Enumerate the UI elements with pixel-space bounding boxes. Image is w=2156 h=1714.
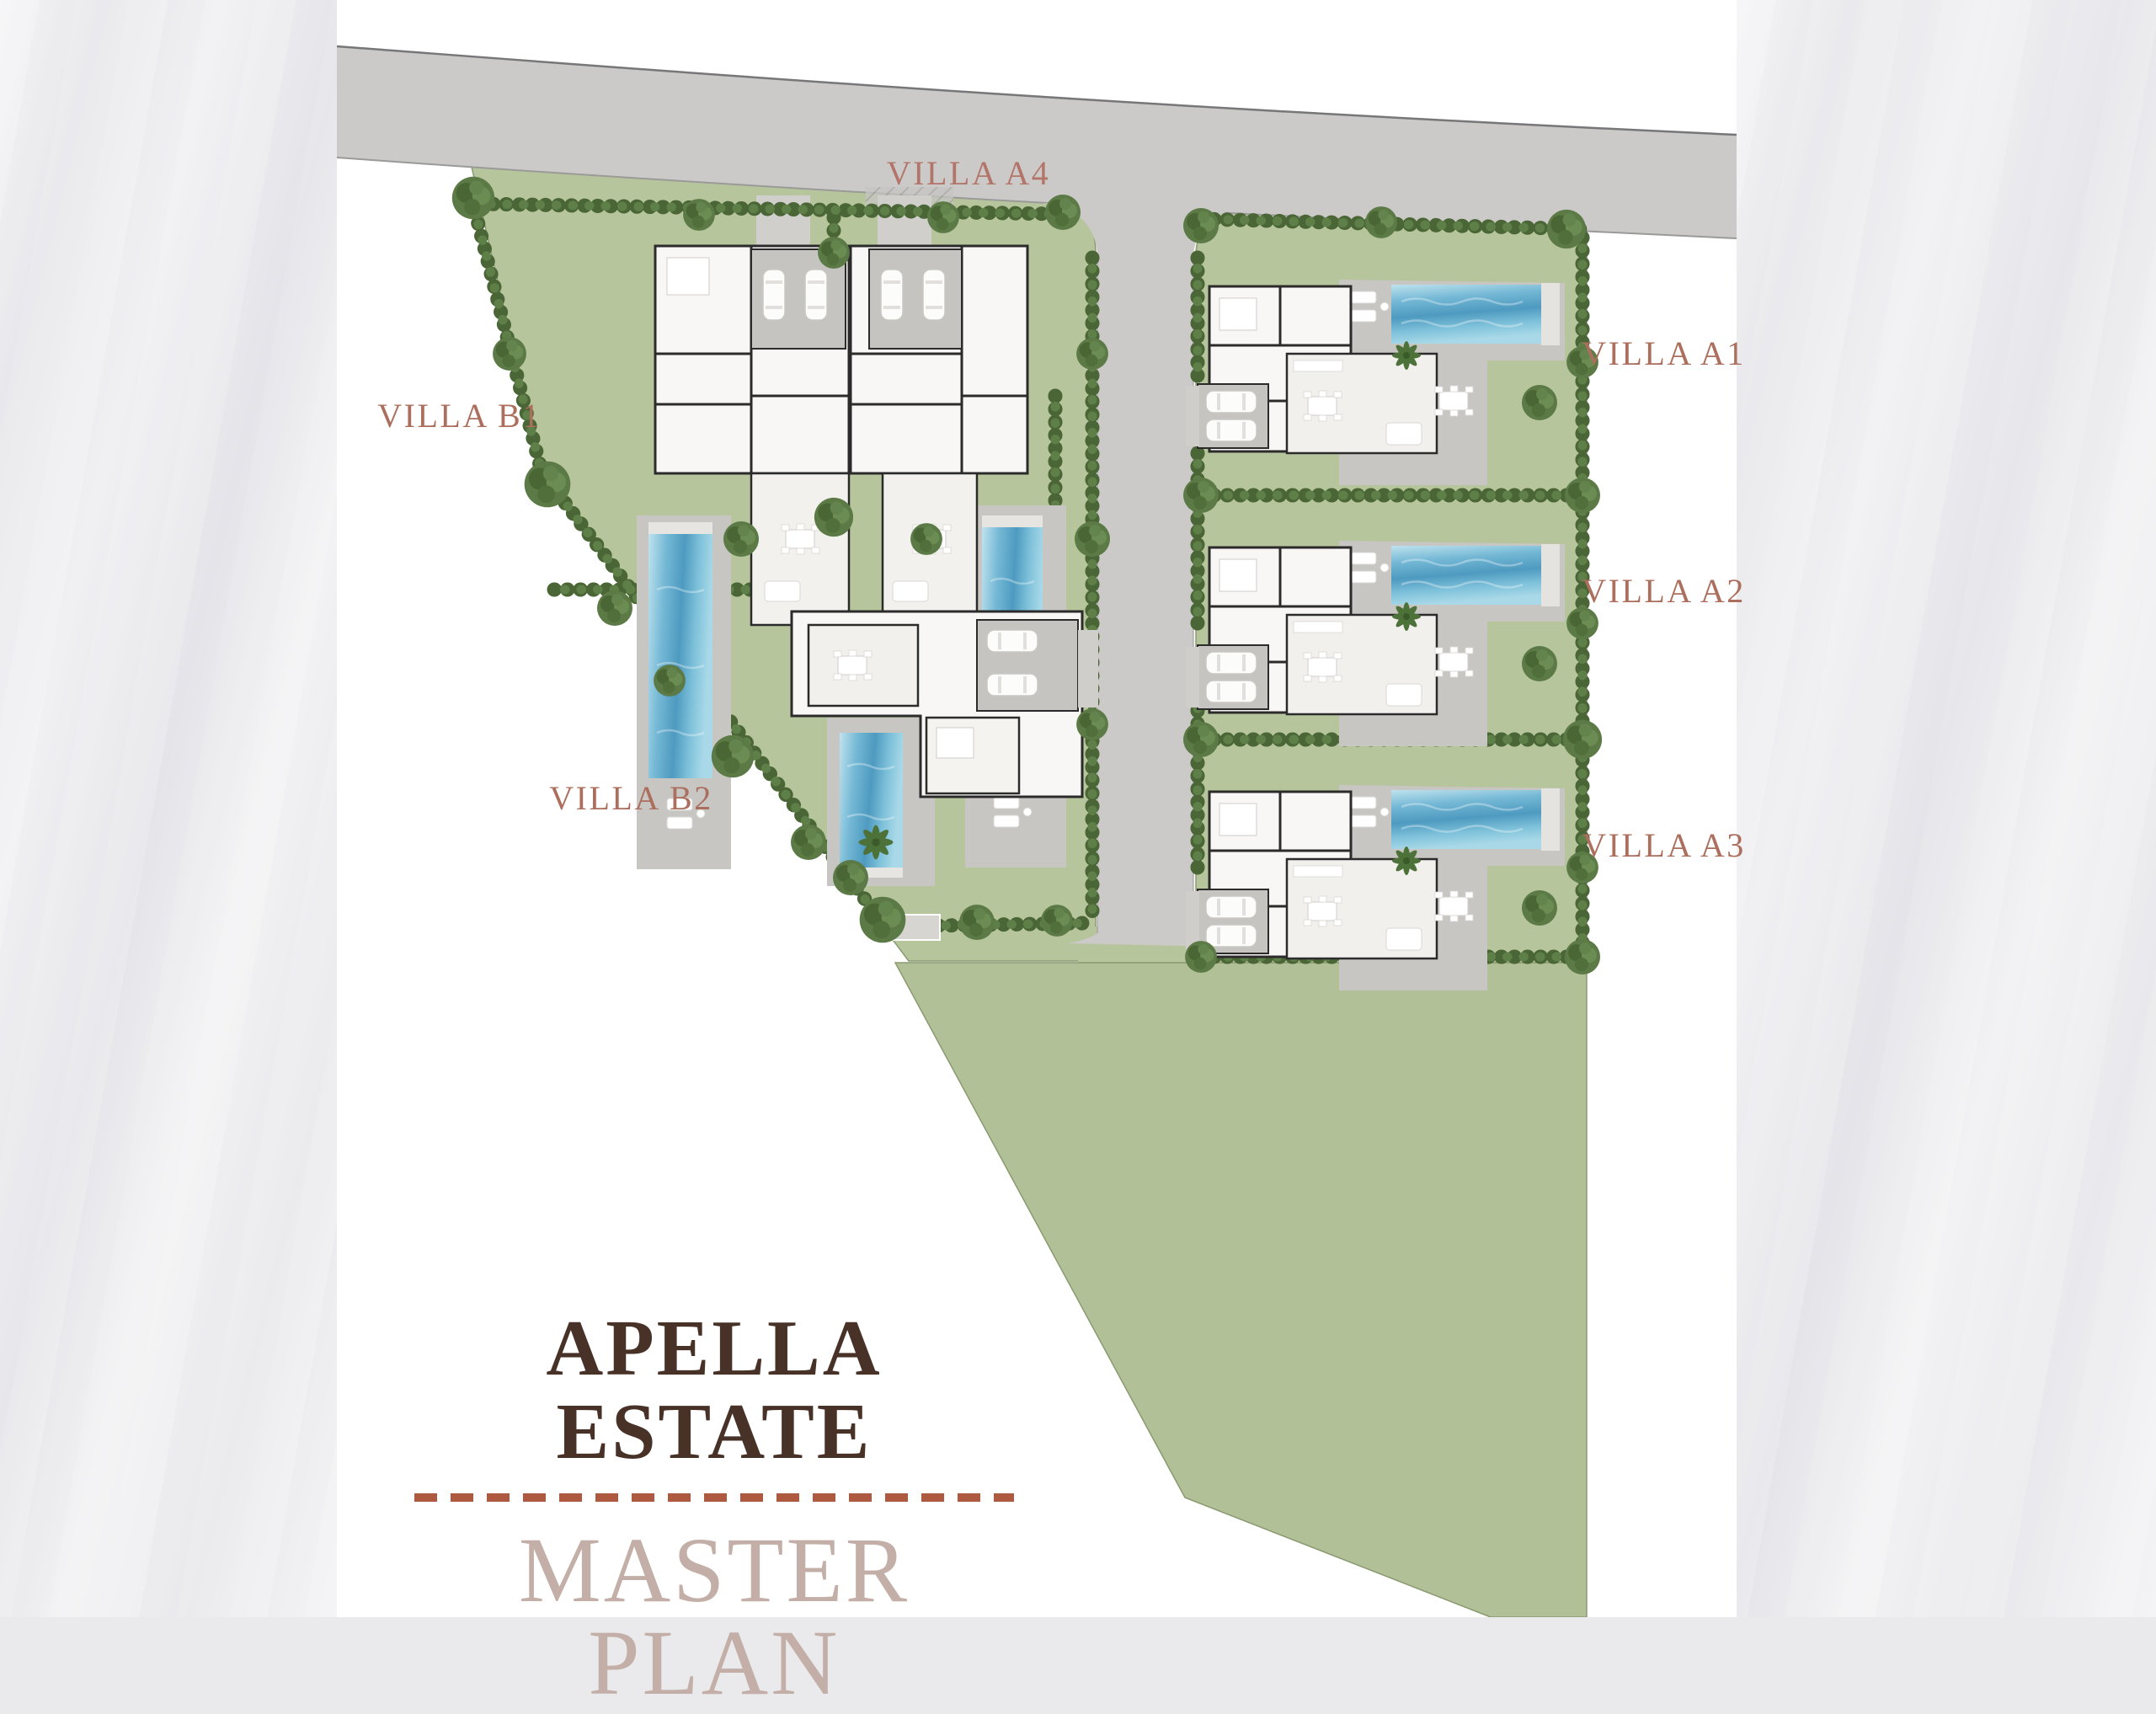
plan-page: VILLA A4 VILLA B1 VILLA B2 VILLA A1 VILL… — [337, 0, 1737, 1617]
villa-label-a4: VILLA A4 — [867, 155, 1070, 192]
marble-border-left — [0, 0, 337, 1617]
title-divider — [414, 1493, 1014, 1502]
villa-label-a1: VILLA A1 — [1582, 335, 1746, 372]
villa-label-a3: VILLA A3 — [1582, 827, 1746, 864]
villa-label-a2: VILLA A2 — [1582, 573, 1746, 610]
marble-border-right — [1737, 0, 2156, 1617]
estate-title: APELLA ESTATE — [408, 1307, 1020, 1473]
plan-subtitle: MASTER PLAN — [408, 1524, 1020, 1709]
villa-label-b2: VILLA B2 — [541, 780, 722, 817]
villa-label-b1: VILLA B1 — [369, 398, 550, 435]
title-block: APELLA ESTATE MASTER PLAN — [408, 1307, 1020, 1709]
plan-canvas: VILLA A4 VILLA B1 VILLA B2 VILLA A1 VILL… — [0, 0, 2156, 1617]
